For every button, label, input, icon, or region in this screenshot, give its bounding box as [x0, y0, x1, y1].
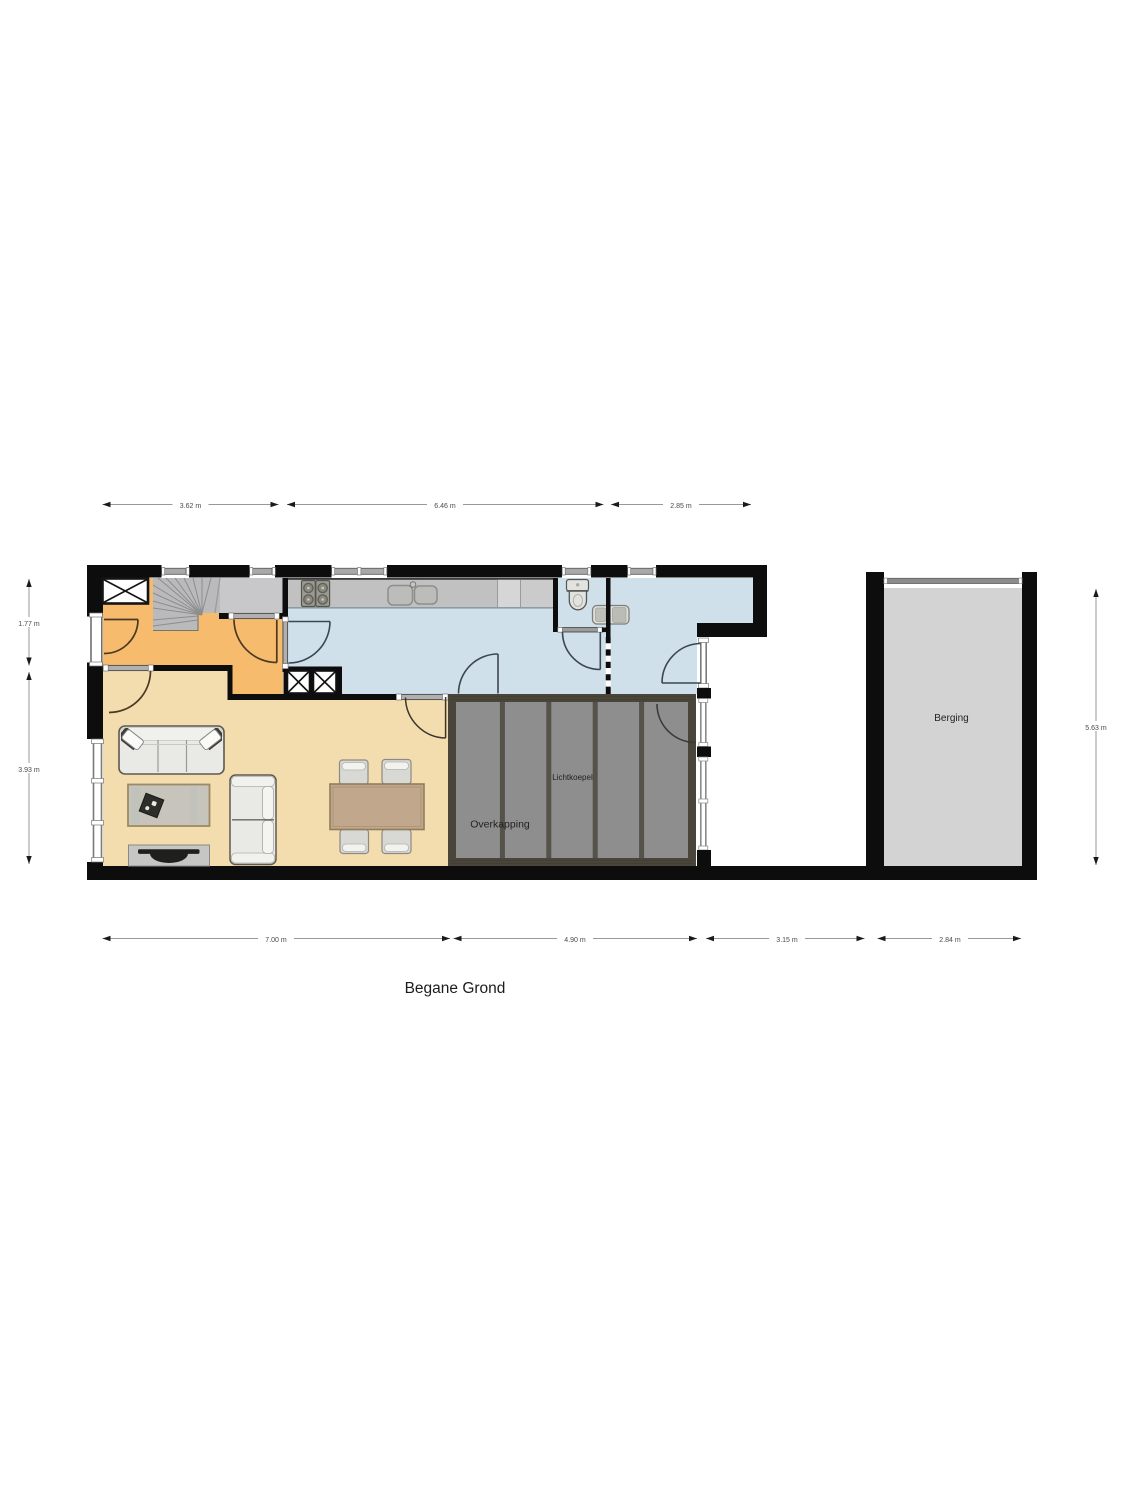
svg-text:Begane Grond: Begane Grond: [405, 980, 506, 997]
svg-text:2.84 m: 2.84 m: [939, 937, 961, 944]
svg-text:Berging: Berging: [934, 713, 968, 724]
svg-text:Overkapping: Overkapping: [470, 819, 530, 831]
svg-text:Lichtkoepel: Lichtkoepel: [552, 773, 593, 782]
svg-text:3.93 m: 3.93 m: [18, 767, 40, 774]
svg-text:3.15 m: 3.15 m: [776, 937, 798, 944]
svg-text:6.46 m: 6.46 m: [434, 503, 456, 510]
svg-text:5.63 m: 5.63 m: [1085, 725, 1107, 732]
svg-text:7.00 m: 7.00 m: [265, 937, 287, 944]
svg-text:1.77 m: 1.77 m: [18, 621, 40, 628]
svg-text:3.62 m: 3.62 m: [180, 503, 202, 510]
svg-text:2.85 m: 2.85 m: [670, 503, 692, 510]
svg-text:4.90 m: 4.90 m: [564, 937, 586, 944]
